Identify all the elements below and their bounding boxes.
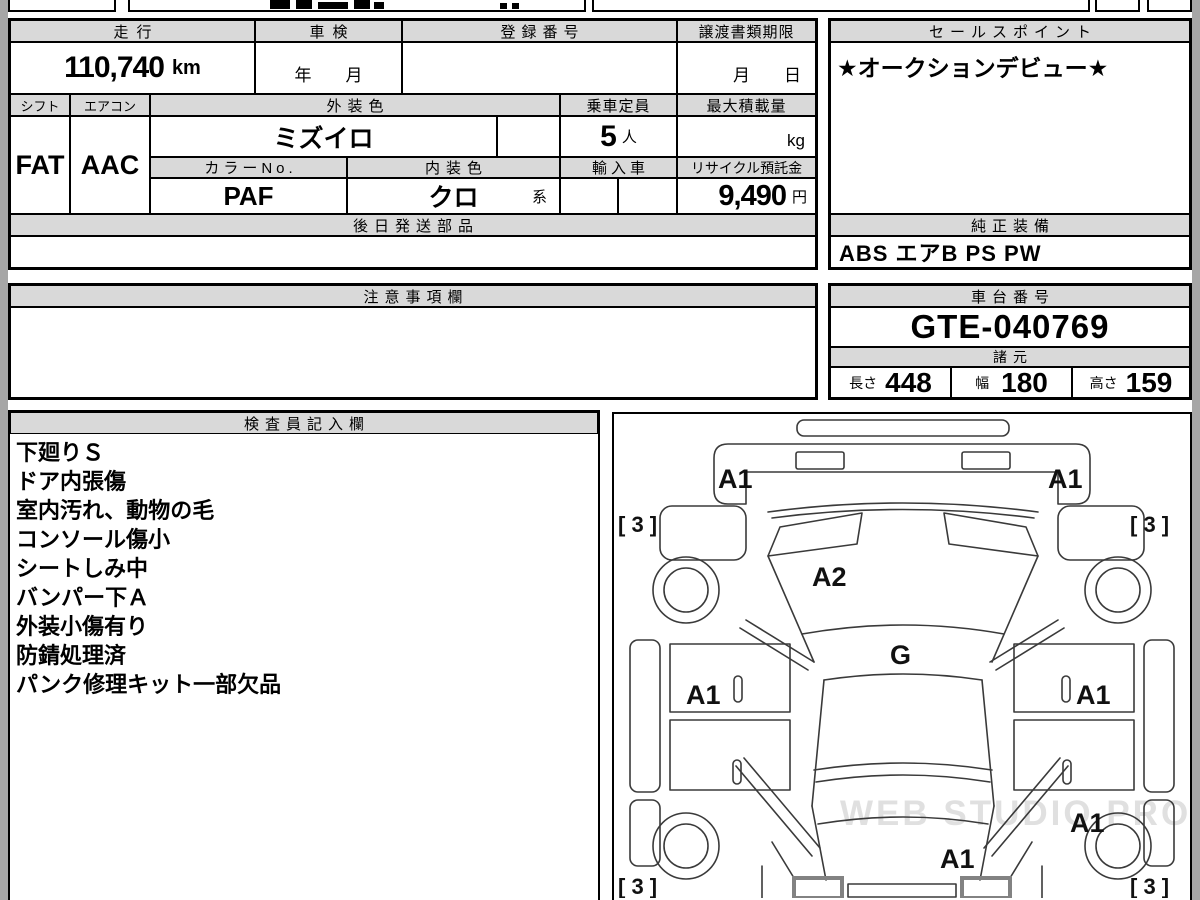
a-pillar-right — [990, 620, 1064, 670]
inspector-note-line: ドア内張傷 — [16, 467, 592, 496]
color-no-value: PAF — [150, 178, 347, 214]
front-fender-left-shape — [660, 506, 746, 560]
interior-color-value-cell: クロ 系 — [347, 178, 560, 214]
equipment-header: 純正装備 — [830, 214, 1190, 236]
aircon-value: AAC — [70, 116, 150, 214]
mileage-unit: km — [172, 57, 201, 80]
later-parts-header: 後日発送部品 — [10, 214, 816, 236]
equipment-value: ABS エアB PS PW — [830, 236, 1190, 268]
spec-length-cell: 長さ 448 — [830, 367, 951, 398]
windshield-left-pane — [768, 513, 862, 556]
inspector-note-line: シートしみ中 — [16, 554, 592, 583]
aircon-header: エアコン — [70, 94, 150, 116]
headlight-right-shape — [962, 452, 1010, 469]
wheel-front-left — [653, 557, 719, 623]
door-handle-right-rear — [1063, 760, 1071, 784]
capacity-header: 乗車定員 — [560, 94, 677, 116]
inspector-header: 検査員記入欄 — [10, 412, 598, 434]
damage-code-rear-quarter-right: A1 — [1070, 808, 1105, 838]
tire-depth-rear-left: [ 3 ] — [618, 874, 657, 898]
transfer-value-cell: 月 日 — [677, 42, 816, 94]
headlight-left-shape — [796, 452, 844, 469]
import-header: 輸入車 — [560, 157, 677, 178]
interior-color-value: クロ — [428, 178, 478, 214]
inspection-value-cell: 年 月 — [255, 42, 402, 94]
rear-bumper-lines — [762, 842, 1042, 898]
color-no-header: カラーNo. — [150, 157, 347, 178]
sales-point-header: セールスポイント — [830, 20, 1190, 42]
import-value-cell-b — [618, 178, 677, 214]
damage-code-front-right: A1 — [1048, 464, 1083, 494]
spec-height-label: 高さ — [1090, 373, 1118, 393]
spec-length-value: 448 — [885, 367, 932, 398]
specs-header: 諸元 — [830, 347, 1190, 367]
door-handle-left-front — [734, 676, 742, 702]
damage-code-door-right: A1 — [1076, 680, 1111, 710]
spec-width-value: 180 — [1001, 367, 1048, 398]
auction-sheet: 走行 車検 登録番号 譲渡書類期限 110,740 km 年 月 月 日 シフト… — [0, 0, 1200, 900]
inspector-note-line: 外装小傷有り — [16, 612, 592, 641]
wheel-rear-left — [653, 813, 719, 879]
damage-code-door-left: A1 — [686, 680, 721, 710]
clipped-top-row — [0, 0, 1200, 13]
rocker-right-shape — [1144, 640, 1174, 792]
spec-width-label: 幅 — [975, 373, 989, 393]
door-front-right-shape — [1014, 644, 1134, 712]
interior-color-header: 内装色 — [347, 157, 560, 178]
inspector-notes: 下廻りＳドア内張傷室内汚れ、動物の毛コンソール傷小シートしみ中バンパー下Ａ外装小… — [10, 436, 598, 898]
rocker-left-shape — [630, 640, 660, 792]
capacity-value: 5 — [600, 120, 616, 154]
inspector-note-line: 防錆処理済 — [16, 641, 592, 670]
notes-header: 注意事項欄 — [10, 285, 816, 307]
inspection-header: 車検 — [255, 20, 402, 42]
front-bumper-shape — [714, 444, 1090, 504]
mileage-header: 走行 — [10, 20, 255, 42]
hood-front-arc — [802, 625, 1004, 634]
recycle-header: リサイクル預託金 — [677, 157, 816, 178]
exterior-color-header: 外装色 — [150, 94, 560, 116]
inspector-note-line: 下廻りＳ — [16, 438, 592, 467]
tire-depth-front-left: [ 3 ] — [618, 512, 657, 537]
chassis-specs-table: 車台番号 GTE-040769 諸元 長さ 448 幅 180 高さ 159 — [828, 283, 1192, 400]
max-load-header: 最大積載量 — [677, 94, 816, 116]
c-pillar-right — [984, 758, 1068, 856]
interior-color-suffix: 系 — [532, 186, 547, 207]
left-margin — [0, 0, 8, 900]
rear-window-arc — [818, 817, 988, 824]
notes-table: 注意事項欄 — [8, 283, 818, 400]
right-margin — [1192, 0, 1200, 900]
capacity-unit: 人 — [622, 126, 637, 147]
recycle-value: 9,490 — [718, 180, 786, 213]
rear-plate-shape — [848, 884, 956, 897]
chassis-value: GTE-040769 — [830, 307, 1190, 347]
seat-arcs — [814, 763, 992, 782]
transfer-docs-header: 譲渡書類期限 — [677, 20, 816, 42]
mileage-value: 110,740 — [64, 51, 164, 85]
registration-header: 登録番号 — [402, 20, 677, 42]
damage-code-cowl: G — [890, 640, 911, 670]
vehicle-info-table: 走行 車検 登録番号 譲渡書類期限 110,740 km 年 月 月 日 シフト… — [8, 18, 818, 270]
cowl-arc — [768, 503, 1038, 512]
c-pillar-left — [736, 758, 820, 856]
shift-header: シフト — [10, 94, 70, 116]
spec-height-value: 159 — [1126, 367, 1173, 398]
hood-side-left — [768, 556, 814, 662]
mileage-value-cell: 110,740 km — [10, 42, 255, 94]
import-value-cell-a — [560, 178, 618, 214]
tail-light-left-shape — [794, 878, 842, 898]
tail-light-right-shape — [962, 878, 1010, 898]
windshield-right-pane — [944, 513, 1038, 556]
spec-height-cell: 高さ 159 — [1072, 367, 1190, 398]
capacity-value-cell: 5 人 — [560, 116, 677, 157]
damage-code-front-left: A1 — [718, 464, 753, 494]
cowl-arc-inner — [772, 510, 1034, 519]
tire-depth-front-right: [ 3 ] — [1130, 512, 1169, 537]
inspector-table: 検査員記入欄 下廻りＳドア内張傷室内汚れ、動物の毛コンソール傷小シートしみ中バン… — [8, 410, 600, 900]
cabin-front-arc — [824, 674, 982, 680]
exterior-color-value: ミズイロ — [150, 116, 497, 157]
spec-width-cell: 幅 180 — [951, 367, 1072, 398]
cabin-sides — [812, 680, 994, 806]
door-rear-right-shape — [1014, 720, 1134, 790]
car-outline-diagram: A1 A1 A2 G A1 A1 A1 A1 [ 3 ] [ 3 ] [ 3 ]… — [614, 414, 1190, 898]
max-load-value-cell: kg — [677, 116, 816, 157]
sales-point-table: セールスポイント ★オークションデビュー★ 純正装備 ABS エアB PS PW — [828, 18, 1192, 270]
damage-code-rear: A1 — [940, 844, 975, 874]
door-handle-left-rear — [733, 760, 741, 784]
recycle-value-cell: 9,490 円 — [677, 178, 816, 214]
damage-code-hood: A2 — [812, 562, 847, 592]
exterior-color-extra-cell — [497, 116, 560, 157]
door-rear-left-shape — [670, 720, 790, 790]
inspector-note-line: バンパー下Ａ — [16, 583, 592, 612]
later-parts-value-cell — [10, 236, 816, 268]
a-pillar-left — [740, 620, 814, 670]
notes-body — [10, 307, 816, 398]
inspector-note-line: 室内汚れ、動物の毛 — [16, 496, 592, 525]
inspector-note-line: パンク修理キット一部欠品 — [16, 670, 592, 699]
shift-value: FAT — [10, 116, 70, 214]
door-handle-right-front — [1062, 676, 1070, 702]
inspector-note-line: コンソール傷小 — [16, 525, 592, 554]
tire-depth-rear-right: [ 3 ] — [1130, 874, 1169, 898]
recycle-unit: 円 — [792, 186, 807, 207]
sales-point-text: ★オークションデビュー★ — [830, 42, 1190, 214]
chassis-header: 車台番号 — [830, 285, 1190, 307]
spec-length-label: 長さ — [849, 373, 877, 393]
roof-strip-shape — [797, 420, 1009, 436]
registration-value-cell — [402, 42, 677, 94]
wheel-front-right — [1085, 557, 1151, 623]
damage-diagram-panel: WEB STUDIO PRO — [612, 412, 1192, 900]
